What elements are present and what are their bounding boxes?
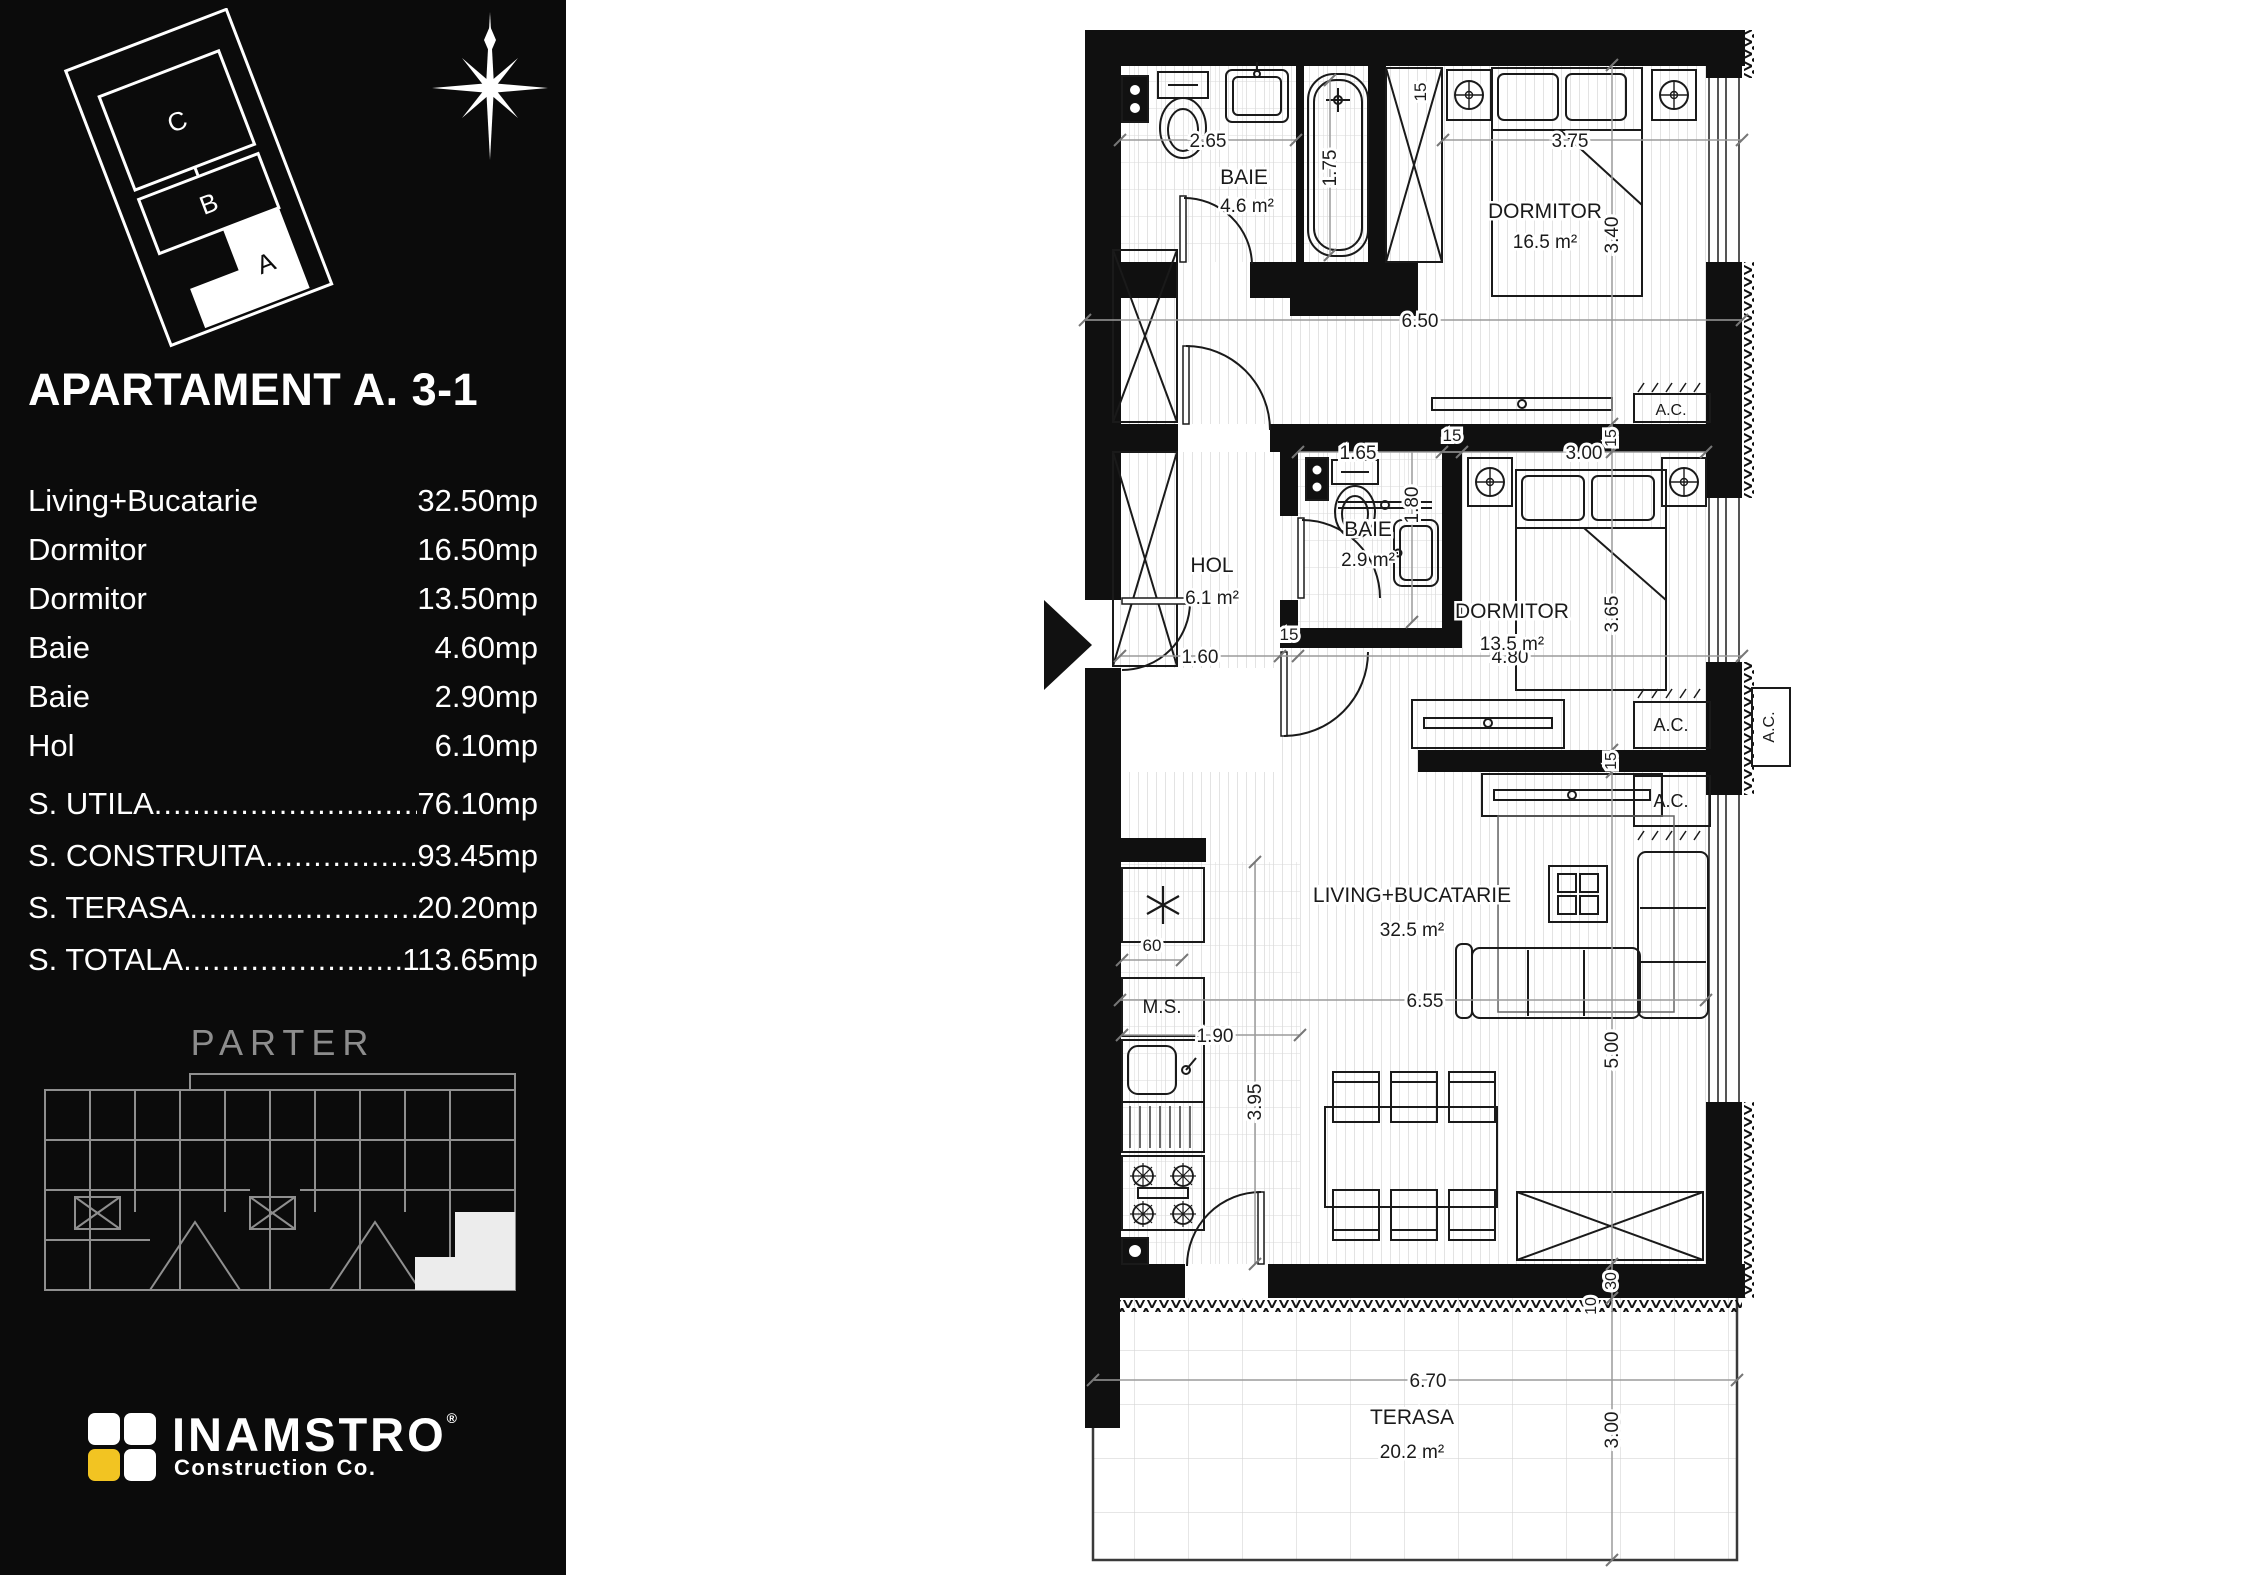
room-area: 32.5 m² xyxy=(1380,920,1444,941)
logo-square-accent xyxy=(88,1449,120,1481)
room-row: Dormitor16.50mp xyxy=(28,532,538,581)
windows xyxy=(1706,78,1742,1102)
total-row: S. CONSTRUITA...........................… xyxy=(28,838,538,890)
room-value: 13.50mp xyxy=(417,581,538,617)
logo-square xyxy=(124,1449,156,1481)
dim-label: 2.65 xyxy=(1190,131,1227,152)
dim-label: 30 xyxy=(1603,1272,1620,1290)
dim-label: 10 xyxy=(1583,1297,1600,1315)
room-label: Hol xyxy=(28,728,75,764)
section-c-label: C xyxy=(163,104,191,139)
dim-label: 3.40 xyxy=(1602,217,1623,254)
dim-label: 1.75 xyxy=(1320,150,1341,187)
floor-drain xyxy=(1122,1238,1148,1264)
dim-label: 15 xyxy=(1603,752,1620,770)
registered-mark: ® xyxy=(447,1410,457,1426)
total-row: S. TOTALA...............................… xyxy=(28,942,538,994)
dim-label: 3.65 xyxy=(1602,596,1623,633)
dim-label: 3.95 xyxy=(1245,1084,1266,1121)
dot-leader: ........................................… xyxy=(265,838,417,874)
compass-north-icon xyxy=(420,8,560,168)
dim-label: 1.65 xyxy=(1340,443,1377,464)
room-value: 6.10mp xyxy=(435,728,538,764)
room-area: 6.1 m² xyxy=(1185,588,1239,609)
dim-label: 5.00 xyxy=(1602,1032,1623,1069)
ac-label: A.C. xyxy=(1653,791,1688,811)
total-label: S. UTILA xyxy=(28,786,154,822)
apartment-title: APARTAMENT A. 3-1 xyxy=(28,364,548,416)
room-row: Living+Bucatarie32.50mp xyxy=(28,483,538,532)
total-row: S. UTILA................................… xyxy=(28,786,538,838)
room-row: Baie4.60mp xyxy=(28,630,538,679)
sidebar: C B A APARTAMENT A. 3-1 Living+Bucatarie… xyxy=(0,0,566,1575)
room-area: 4.6 m² xyxy=(1220,196,1274,217)
room-name: BAIE xyxy=(1220,166,1268,189)
room-name: DORMITOR xyxy=(1488,200,1602,223)
room-label: Living+Bucatarie xyxy=(28,483,258,519)
room-name: BAIE xyxy=(1344,518,1392,541)
lamp-icon xyxy=(1660,81,1688,109)
room-value: 16.50mp xyxy=(417,532,538,568)
dim-label: 15 xyxy=(1411,83,1430,102)
dim-label: 60 xyxy=(1143,936,1162,955)
room-name: DORMITOR xyxy=(1455,600,1569,623)
dim-label: 1.60 xyxy=(1182,647,1219,668)
room-area: 13.5 m² xyxy=(1480,634,1544,655)
lamp-icon xyxy=(1476,468,1504,496)
room-label: Baie xyxy=(28,630,90,666)
total-value: 20.20mp xyxy=(417,890,538,926)
window-dormitor1 xyxy=(1706,78,1742,262)
room-label: Dormitor xyxy=(28,581,147,617)
logo-name: INAMSTRO® xyxy=(172,1407,457,1462)
highlighted-apartment xyxy=(415,1212,515,1290)
dot-leader: ........................................… xyxy=(189,890,417,926)
room-area-list: Living+Bucatarie32.50mp Dormitor16.50mp … xyxy=(28,483,538,777)
logo-square xyxy=(88,1413,120,1445)
room-row: Baie2.90mp xyxy=(28,679,538,728)
dim-label: 15 xyxy=(1443,426,1462,445)
room-row: Hol6.10mp xyxy=(28,728,538,777)
dim-label: 6.50 xyxy=(1402,311,1439,332)
parter-thumbnail xyxy=(0,1062,566,1307)
dot-leader: ........................................… xyxy=(183,942,402,978)
dim-label: 1.90 xyxy=(1197,1026,1234,1047)
total-value: 93.45mp xyxy=(417,838,538,874)
total-value: 76.10mp xyxy=(417,786,538,822)
total-value: 113.65mp xyxy=(402,942,538,978)
section-b-label: B xyxy=(195,186,222,220)
window-dormitor2 xyxy=(1706,498,1742,662)
logo-mark xyxy=(88,1413,156,1481)
room-area: 20.2 m² xyxy=(1380,1442,1444,1463)
total-label: S. TERASA xyxy=(28,890,189,926)
floor-level-label: PARTER xyxy=(0,1022,566,1064)
room-area: 16.5 m² xyxy=(1513,232,1577,253)
room-label: Baie xyxy=(28,679,90,715)
room-row: Dormitor13.50mp xyxy=(28,581,538,630)
lamp-icon xyxy=(1670,468,1698,496)
lamp-icon xyxy=(1455,81,1483,109)
building-location-icon: C B A xyxy=(55,8,345,348)
floor-plan: 2.65 3.75 1.75 15 6.50 1.65 15 3.00 1.80… xyxy=(1040,0,1810,1575)
dim-label: 3.75 xyxy=(1552,131,1589,152)
dim-label: 1.80 xyxy=(1402,487,1423,524)
page: C B A APARTAMENT A. 3-1 Living+Bucatarie… xyxy=(0,0,2260,1575)
section-a-highlight xyxy=(174,208,309,328)
dim-label: 3.00 xyxy=(1566,443,1603,464)
total-label: S. TOTALA xyxy=(28,942,183,978)
electrical-panel xyxy=(1306,458,1328,500)
room-area: 2.9 m² xyxy=(1341,550,1395,571)
logo-square xyxy=(124,1413,156,1445)
room-name: HOL xyxy=(1190,554,1233,577)
window-living xyxy=(1706,795,1742,1102)
dim-label: 6.55 xyxy=(1407,991,1444,1012)
dim-label: 15 xyxy=(1280,625,1299,644)
total-row: S. TERASA...............................… xyxy=(28,890,538,942)
room-label: Dormitor xyxy=(28,532,147,568)
room-name: TERASA xyxy=(1370,1406,1454,1429)
room-value: 2.90mp xyxy=(435,679,538,715)
ac-label: A.C. xyxy=(1761,711,1778,742)
ac-label: A.C. xyxy=(1653,715,1688,735)
logo-subtitle: Construction Co. xyxy=(174,1455,376,1481)
total-label: S. CONSTRUITA xyxy=(28,838,265,874)
ms-label: M.S. xyxy=(1142,997,1181,1018)
dot-leader: ........................................… xyxy=(154,786,418,822)
dim-label: 15 xyxy=(1603,429,1620,447)
electrical-panel xyxy=(1122,76,1148,122)
surface-totals: S. UTILA................................… xyxy=(28,786,538,994)
room-value: 32.50mp xyxy=(417,483,538,519)
dim-label: 6.70 xyxy=(1410,1371,1447,1392)
dim-label: 3.00 xyxy=(1602,1412,1623,1449)
ac-label: A.C. xyxy=(1655,402,1686,419)
room-value: 4.60mp xyxy=(435,630,538,666)
room-name: LIVING+BUCATARIE xyxy=(1313,884,1511,907)
